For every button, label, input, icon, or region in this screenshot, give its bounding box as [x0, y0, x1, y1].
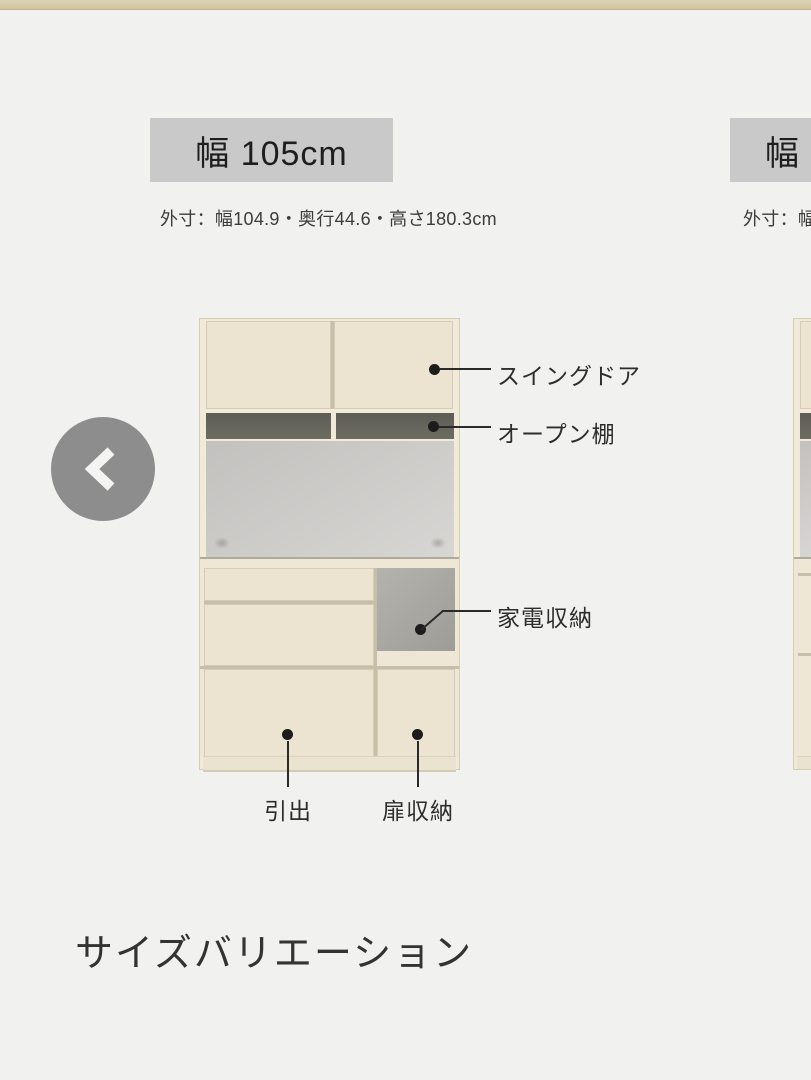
storage-door-bottom	[377, 669, 455, 758]
callout-line-appliance	[442, 610, 491, 612]
callout-dot-drawer	[282, 729, 293, 740]
outer-dimensions-text: 外寸：幅104.9・奥行44.6・高さ180.3cm	[160, 205, 497, 231]
callout-label-drawer: 引出	[264, 792, 312, 826]
open-shelf-left	[206, 413, 331, 439]
counter-back-panel	[206, 441, 454, 557]
door-gap	[331, 321, 334, 409]
callout-dot-swing-door	[429, 364, 440, 375]
next-cabinet-diagram-partial	[793, 318, 811, 770]
next-drawer-gap-2	[798, 653, 811, 656]
next-cabinet-base-edge	[797, 756, 811, 770]
callout-dot-door-storage	[412, 729, 423, 740]
next-size-title: 幅	[765, 126, 800, 175]
callout-line-door-storage	[417, 741, 419, 787]
cabinet-diagram	[199, 318, 460, 770]
callout-line-swing-door	[440, 368, 491, 370]
next-lower-body-edge	[794, 557, 811, 758]
callout-line-drawer	[287, 741, 289, 787]
callout-line-open-shelf	[439, 426, 491, 428]
swing-door-left	[206, 321, 331, 409]
chevron-left-icon	[51, 417, 155, 521]
cabinet-lower-body	[200, 557, 459, 758]
next-size-title-box: 幅	[730, 118, 811, 182]
callout-label-door-storage: 扉収納	[382, 792, 454, 826]
drawer-middle	[204, 604, 374, 666]
next-open-shelf-edge	[800, 413, 811, 439]
callout-label-swing-door: スイングドア	[497, 357, 641, 391]
drawer-bottom	[204, 669, 374, 758]
next-back-panel-edge	[800, 441, 811, 557]
callout-dot-open-shelf	[428, 421, 439, 432]
next-drawer-gap-1	[798, 573, 811, 576]
size-title: 幅 105cm	[195, 126, 348, 175]
callout-label-appliance: 家電収納	[497, 599, 593, 633]
carousel-prev-button[interactable]	[51, 417, 155, 521]
next-outer-dimensions-text: 外寸：幅	[743, 205, 811, 231]
callout-label-open-shelf: オープン棚	[497, 415, 616, 449]
size-title-box: 幅 105cm	[150, 118, 393, 182]
drawer-small	[204, 568, 374, 601]
cord-hole-right	[430, 537, 446, 549]
next-door-edge	[800, 321, 811, 409]
section-heading: サイズバリエーション	[75, 922, 473, 977]
cord-hole-left	[214, 537, 230, 549]
